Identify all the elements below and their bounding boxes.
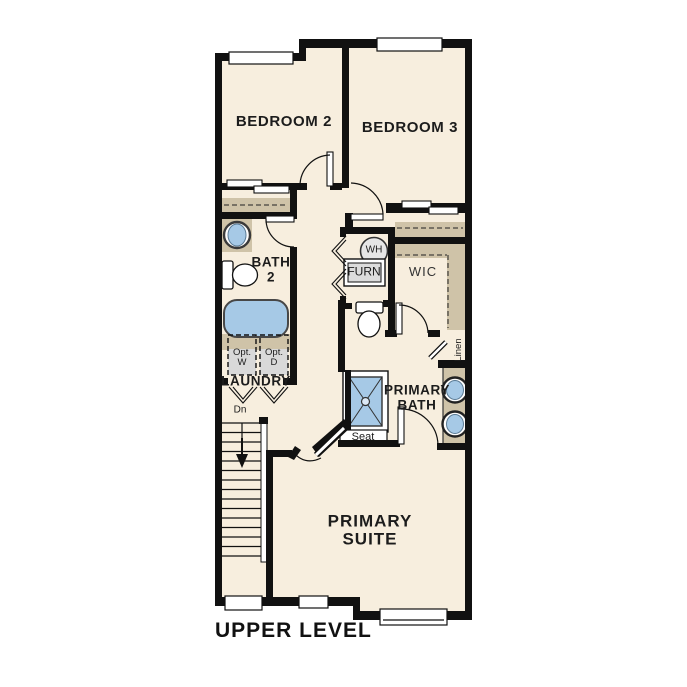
stairs-down-label: Dn: [234, 406, 247, 417]
window-bedroom2: [229, 52, 293, 64]
wic-label: WIC: [409, 265, 437, 279]
laundry-label: LAUNDRY: [221, 375, 291, 390]
bath2-label: BATH 2: [252, 255, 291, 284]
wic-side-shelf: [447, 244, 465, 330]
bedroom2-door: [327, 152, 333, 186]
bath2-door: [266, 216, 294, 222]
primary-bath-label: PRIMARY BATH: [384, 383, 450, 412]
railing-post: [259, 417, 268, 424]
window-suite-left: [299, 596, 328, 608]
opt-washer-label: Opt. W: [233, 348, 251, 369]
floor-plan: BEDROOM 2 BEDROOM 3 BATH 2 LAUNDRY WIC L…: [0, 0, 687, 687]
opt-dryer-label: Opt. D: [265, 348, 283, 369]
bathtub: [224, 300, 288, 337]
water-heater-label: WH: [366, 246, 383, 257]
wic-door: [396, 303, 402, 334]
window-stairwell: [225, 596, 262, 610]
bedroom3-closet-shelf: [395, 222, 465, 237]
bedroom3-label: BEDROOM 3: [362, 120, 458, 136]
window-bedroom3: [377, 38, 442, 51]
shower-seat-label: Seat: [352, 432, 375, 444]
linen-label: Linen: [454, 338, 464, 361]
floor-plan-drawing: [0, 0, 687, 687]
bedroom3-door: [351, 214, 383, 220]
bath2-sink: [224, 222, 250, 248]
window-suite-main: [380, 609, 447, 625]
bedroom2-label: BEDROOM 2: [236, 114, 332, 130]
primary-suite-label: PRIMARY SUITE: [328, 513, 413, 550]
plan-title: UPPER LEVEL: [215, 619, 372, 643]
furnace-label: FURN: [347, 266, 380, 279]
